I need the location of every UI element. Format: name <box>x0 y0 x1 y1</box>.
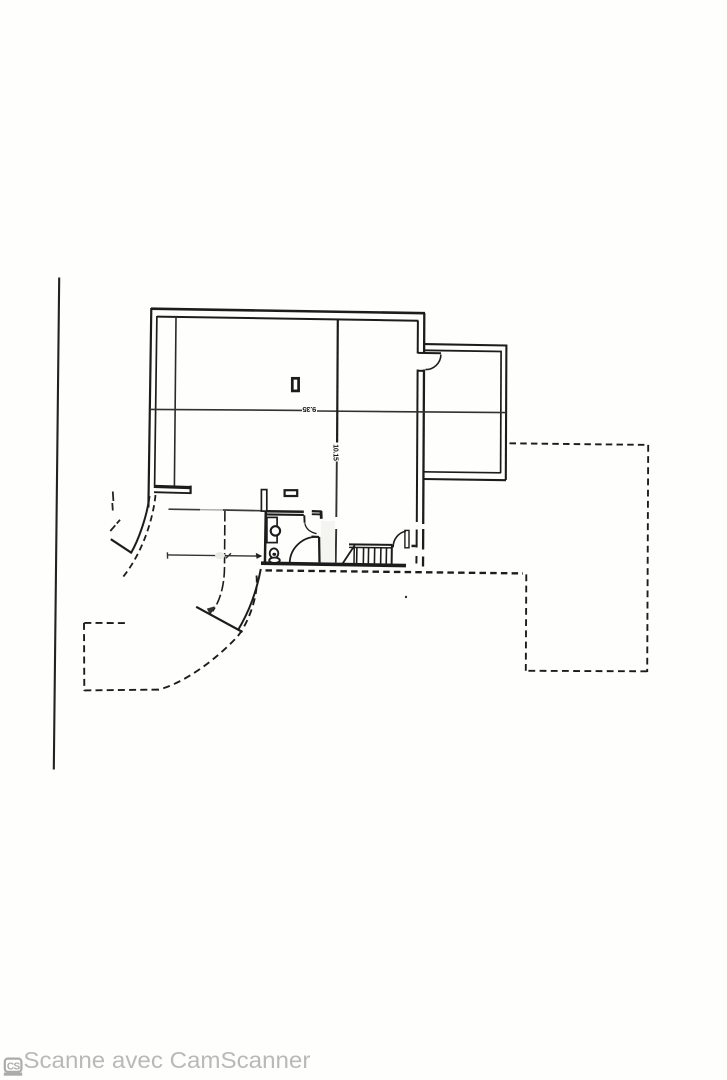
svg-text:Scanne avec CamScanner: Scanne avec CamScanner <box>23 1047 310 1073</box>
svg-text:9.35: 9.35 <box>303 405 317 414</box>
svg-text:10.15: 10.15 <box>332 444 339 461</box>
svg-text:CS: CS <box>7 1061 21 1072</box>
